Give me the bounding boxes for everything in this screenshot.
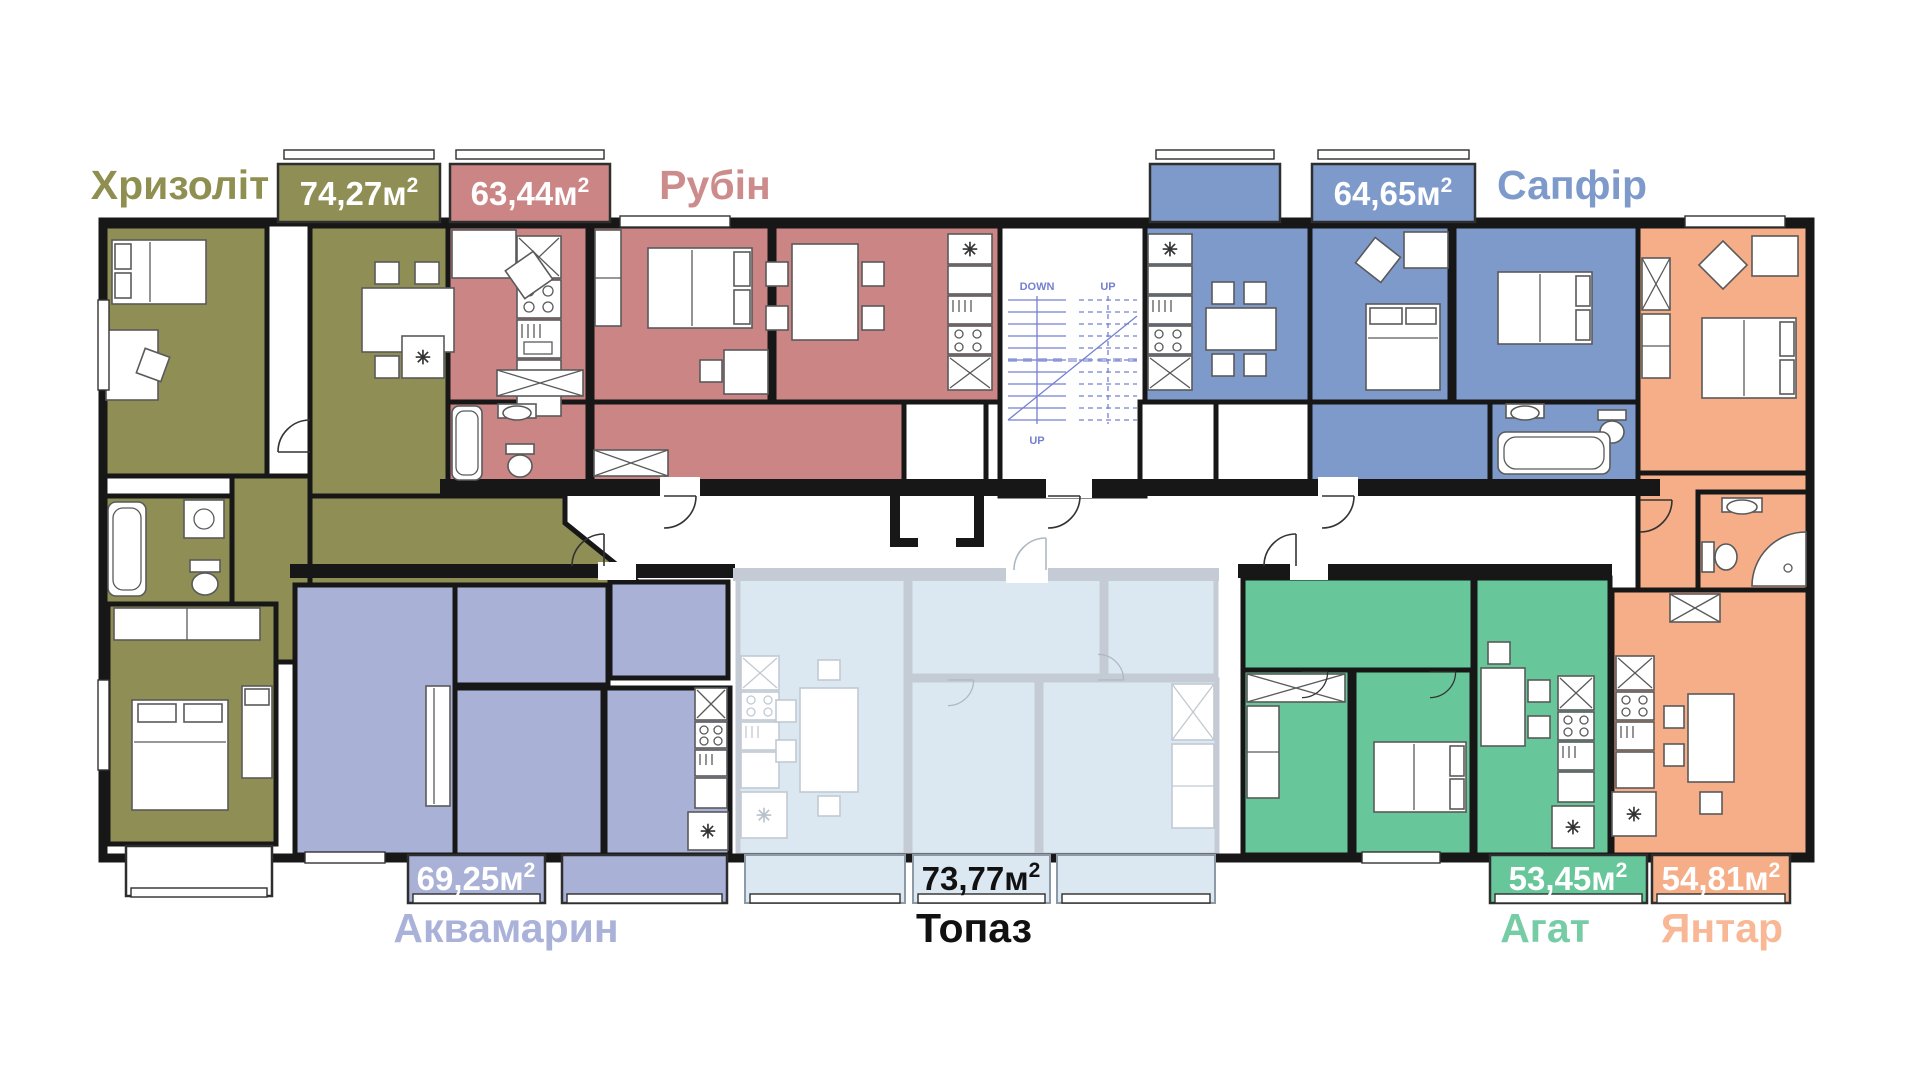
topaz-bedroom-1 (910, 680, 1037, 855)
balcony-rail (1062, 894, 1210, 903)
kitchen-strip: ✳ (1612, 656, 1656, 836)
door-ahat-entry (1264, 534, 1296, 566)
sink (498, 404, 536, 420)
wall-band-topaz-top (733, 568, 1219, 581)
ahat-hall (1243, 578, 1473, 670)
sink (1506, 404, 1544, 420)
balcony-rail (456, 150, 604, 159)
bed (112, 240, 206, 304)
fridge: ✳ (402, 336, 444, 378)
area-label-rubin: 63,44м2 (471, 174, 590, 212)
wall-band-akvamaryn-top (290, 564, 735, 578)
area-label-akvamaryn: 69,25м2 (417, 859, 536, 897)
sofa (426, 686, 450, 806)
toilet (1702, 542, 1737, 572)
fridge-icon: ✳ (415, 348, 431, 369)
toilet (190, 560, 220, 595)
door-khryzolit-bedroom (278, 420, 310, 452)
door-sapfir-entry (1322, 496, 1354, 528)
bed (1498, 272, 1592, 344)
balcony-rail (567, 894, 722, 903)
rubin-storage (904, 402, 986, 490)
wardrobe (1670, 594, 1720, 622)
kitchen-strip: ✳ (1148, 234, 1192, 390)
stair-up-label: UP (1029, 435, 1044, 447)
cabinet (1172, 744, 1214, 828)
bed (1366, 304, 1440, 390)
window (1685, 216, 1785, 227)
washer (184, 500, 224, 538)
cabinet (114, 608, 260, 640)
apartment-label-ahat: Агат (1500, 905, 1590, 951)
balcony-rail (750, 894, 900, 903)
apartment-label-khryzolit: Хризоліт (91, 162, 270, 208)
bathtub (108, 502, 146, 596)
shelf-cabinet (1642, 314, 1670, 378)
door-gap-sapfir-entry (1318, 477, 1358, 498)
floor-plan-page: ✳ (0, 0, 1920, 1080)
balcony-rail (131, 888, 267, 897)
apartment-label-akvamaryn: Аквамарин (393, 905, 618, 951)
akvamaryn-bedroom-small (610, 582, 728, 678)
apartment-label-rubin: Рубін (659, 162, 771, 208)
door-stair-entry (1048, 496, 1080, 528)
apartment-akvamaryn (295, 582, 730, 855)
bed (648, 248, 752, 328)
area-label-ahat: 53,45м2 (1509, 859, 1628, 897)
bed (1374, 742, 1466, 812)
wardrobe (1642, 258, 1670, 310)
area-label-topaz: 73,77м2 (922, 859, 1041, 897)
bed (132, 700, 228, 810)
fridge-icon: ✳ (1626, 805, 1642, 826)
fridge-icon: ✳ (1565, 818, 1581, 839)
bathtub (1498, 432, 1610, 474)
window (620, 216, 730, 227)
akvamaryn-hall (455, 585, 608, 685)
stair-down-label: DOWN (1020, 281, 1055, 293)
corridor-wardrobe (594, 450, 668, 476)
topaz-hall (910, 578, 1102, 676)
kitchen-strip: ✳ (1552, 676, 1594, 848)
topaz-bedroom-small (1106, 578, 1216, 676)
fridge-icon: ✳ (700, 822, 716, 843)
balcony-sapfir-2 (1150, 164, 1280, 222)
tall-cabinet (595, 230, 621, 326)
bathtub (452, 406, 482, 480)
door-rubin-entry (664, 496, 696, 528)
kitchen-strip: ✳ (948, 234, 992, 390)
sapfir-corridor (1310, 402, 1490, 490)
toilet (506, 444, 534, 477)
window (98, 680, 109, 770)
balcony-rail (1318, 150, 1469, 159)
area-label-khryzolit: 74,27м2 (300, 174, 419, 212)
floor-plan-canvas: ✳ (0, 0, 1920, 1080)
wardrobe (1247, 674, 1345, 702)
fridge-icon: ✳ (756, 806, 772, 827)
stair-up-label-2: UP (1100, 281, 1115, 293)
fridge-icon: ✳ (1162, 240, 1178, 261)
vestibule-stubs (890, 496, 984, 547)
closet (1247, 706, 1279, 798)
window (305, 852, 385, 863)
window (98, 300, 109, 390)
apartment-label-topaz: Топаз (916, 905, 1032, 951)
bed (1702, 318, 1796, 398)
fridge-icon: ✳ (962, 240, 978, 261)
wardrobe (497, 370, 583, 396)
door-gap-rubin-entry (660, 477, 700, 498)
door-topaz-entry (1014, 538, 1046, 570)
apartment-label-sapfir: Сапфір (1497, 162, 1647, 208)
akvamaryn-bedroom (455, 688, 603, 855)
sapfir-storage (1140, 402, 1216, 490)
wall-band-top-row-left (440, 479, 1145, 496)
area-label-sapfir: 64,65м2 (1334, 174, 1453, 212)
window (1362, 852, 1440, 863)
wall-band-top-row-right (1140, 479, 1660, 496)
balcony-rail (1156, 150, 1274, 159)
apartment-label-yantar: Янтар (1661, 905, 1783, 951)
wardrobe (1172, 684, 1214, 740)
single-bed (242, 686, 272, 778)
door-gap-topaz-entry (1006, 566, 1048, 583)
area-label-yantar: 54,81м2 (1662, 859, 1781, 897)
door-gap-stair-entry (1046, 477, 1092, 498)
sink (1722, 498, 1762, 514)
balcony-rail (284, 150, 434, 159)
